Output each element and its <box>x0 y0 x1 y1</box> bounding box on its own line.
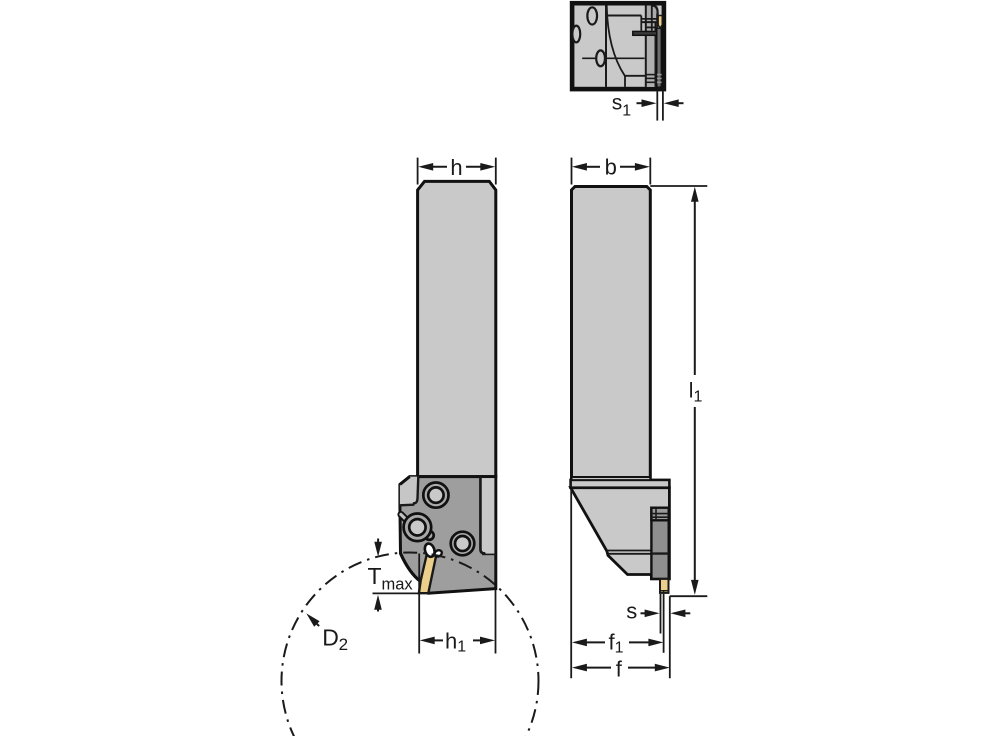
svg-text:s: s <box>626 599 637 624</box>
svg-text:b: b <box>605 154 617 179</box>
svg-text:D: D <box>322 625 339 651</box>
svg-text:max: max <box>382 576 414 594</box>
svg-text:T: T <box>368 563 382 589</box>
svg-text:h: h <box>450 155 462 180</box>
svg-text:2: 2 <box>339 635 348 654</box>
svg-text:f: f <box>616 657 623 682</box>
